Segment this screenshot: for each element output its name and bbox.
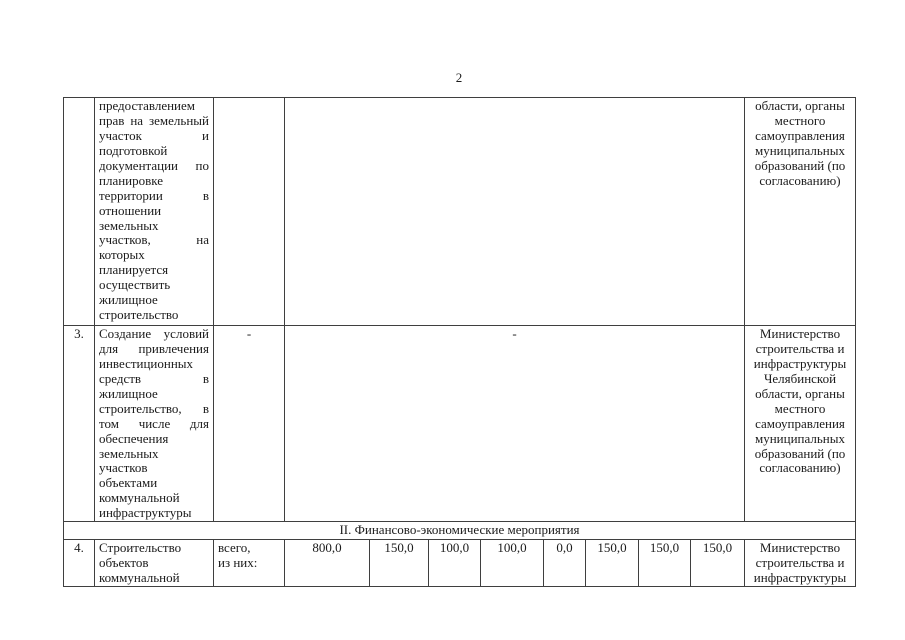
table-row-continuation: предоставлением прав на земельный участо…	[64, 98, 856, 326]
funding-kind-cell	[214, 98, 285, 326]
section-header-cell: II. Финансово-экономические мероприятия	[64, 522, 856, 540]
table-row-4: 4. Строительство объектов коммунальной в…	[64, 540, 856, 587]
table-row-3: 3. Создание условий для привлечения инве…	[64, 326, 856, 522]
responsible-cell: Министерство строительства и инфраструкт…	[745, 326, 856, 522]
value-cell-year-2: 100,0	[429, 540, 481, 587]
page-number: 2	[63, 71, 855, 86]
funding-kind-line2: из них:	[218, 556, 280, 571]
measure-description-cell: предоставлением прав на земельный участо…	[95, 98, 214, 326]
values-merged-cell	[285, 98, 745, 326]
document-page: 2 предоставлением прав на земельный учас…	[0, 0, 905, 640]
funding-kind-line1: всего,	[218, 541, 280, 556]
value-cell-year-5: 150,0	[586, 540, 639, 587]
value-cell-year-6: 150,0	[639, 540, 691, 587]
value-cell-year-4: 0,0	[544, 540, 586, 587]
responsible-cell: области, органы местного самоуправления …	[745, 98, 856, 326]
measure-description-cell: Создание условий для привлечения инвести…	[95, 326, 214, 522]
funding-kind-cell: всего, из них:	[214, 540, 285, 587]
value-cell-year-7: 150,0	[691, 540, 745, 587]
row-number-cell: 4.	[64, 540, 95, 587]
funding-kind-cell: -	[214, 326, 285, 522]
measure-description-cell: Строительство объектов коммунальной	[95, 540, 214, 587]
value-cell-year-1: 150,0	[370, 540, 429, 587]
row-number-cell: 3.	[64, 326, 95, 522]
row-number-cell	[64, 98, 95, 326]
responsible-cell: Министерство строительства и инфраструкт…	[745, 540, 856, 587]
values-merged-cell: -	[285, 326, 745, 522]
value-cell-year-3: 100,0	[481, 540, 544, 587]
section-header-row: II. Финансово-экономические мероприятия	[64, 522, 856, 540]
value-cell-total: 800,0	[285, 540, 370, 587]
measures-table: предоставлением прав на земельный участо…	[63, 97, 856, 587]
